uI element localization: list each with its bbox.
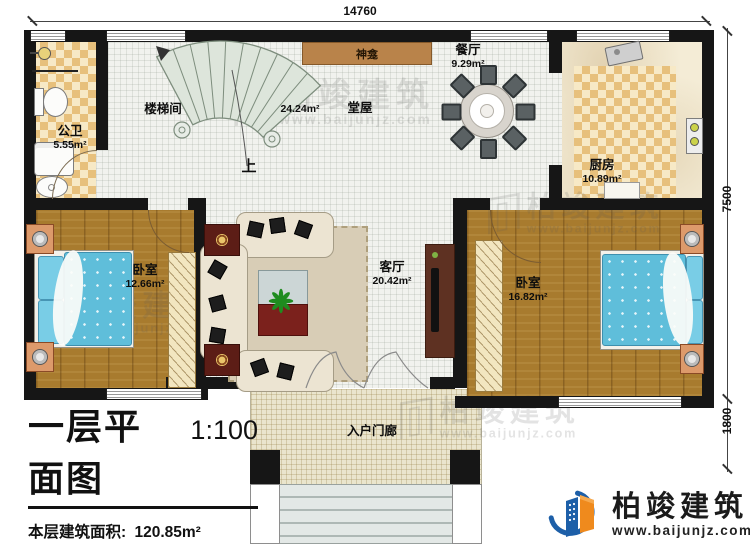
side-table: [204, 344, 240, 376]
dimension-line-top: [30, 21, 710, 22]
room-label-porch: 入户门廊: [347, 424, 397, 439]
stat-value: 120.85m²: [134, 524, 200, 541]
logo-text: 柏竣建筑: [612, 492, 750, 522]
lamp-icon: [684, 351, 700, 367]
spiral-staircase: [120, 8, 335, 178]
wardrobe: [475, 240, 503, 392]
chair-icon: [516, 104, 536, 121]
kitchen-faucet: [614, 49, 620, 55]
dimension-right-upper-value: 7500: [720, 173, 734, 225]
room-label-bedroom-left: 卧室12.66m²: [125, 263, 164, 291]
lamp-icon: [32, 349, 48, 365]
wall-bottom-center-right: [430, 377, 455, 389]
window-dining: [470, 31, 548, 41]
nightstand: [680, 224, 704, 254]
logo-url: www.baijunjz.com: [612, 523, 750, 538]
wall-living-right: [453, 198, 467, 388]
room-label-hall: 堂屋: [347, 101, 372, 116]
stat-line: 本层建筑面积: 120.85m²: [28, 520, 258, 542]
dining-table-hub: [480, 104, 494, 118]
wall-bedroom-right-top-a: [467, 198, 490, 210]
room-label-bedroom-right: 卧室16.82m²: [508, 276, 547, 304]
lamp-icon: [32, 231, 48, 247]
logo-building-icon: [546, 487, 604, 543]
window-bedroom-right: [558, 397, 682, 407]
room-label-kitchen: 厨房10.89m²: [582, 158, 621, 186]
dimension-top-value: 14760: [320, 4, 400, 18]
tv-screen: [431, 268, 439, 332]
gold-emblem-icon: [216, 234, 228, 246]
shrine-cabinet: 神龛: [302, 42, 432, 65]
floor-plan-sheet: 柏竣建筑 www.baijunjz.com 柏竣建筑 www.baijunjz.…: [0, 0, 750, 554]
cushion: [247, 221, 265, 239]
tv-accent: [432, 252, 438, 258]
side-table: [204, 224, 240, 256]
window-kitchen: [576, 31, 670, 41]
company-logo: 柏竣建筑 www.baijunjz.com: [546, 487, 750, 543]
chair-icon: [480, 139, 497, 159]
dimension-right-lower-value: 1800: [720, 395, 734, 447]
chair-icon: [442, 104, 462, 121]
cushion: [209, 327, 226, 344]
entry-steps: [272, 484, 460, 544]
stove-burner: [690, 123, 699, 132]
toilet-bowl: [43, 87, 68, 117]
wall-kitchen-dining-upper: [549, 42, 562, 73]
title-block: 一层平面图 1:100 本层建筑面积: 120.85m² 本层建筑面积: 371…: [28, 398, 258, 554]
column-base: [452, 484, 482, 544]
cushion: [269, 217, 286, 234]
plan-title: 一层平面图: [28, 398, 178, 502]
wall-kitchen-dining-lower: [549, 165, 562, 210]
room-label-living: 客厅20.42m²: [372, 260, 411, 288]
nightstand: [26, 224, 54, 254]
room-label-stairwell: 楼梯间: [144, 102, 182, 117]
shrine-label: 神龛: [356, 46, 378, 62]
porch-column-right: [450, 450, 480, 484]
nightstand: [680, 344, 704, 374]
plan-scale: 1:100: [190, 415, 258, 446]
room-label-dining: 餐厅9.29m²: [451, 43, 484, 71]
stove-burner: [690, 137, 699, 146]
shower-partition: [32, 70, 78, 72]
nightstand: [26, 342, 54, 372]
gold-emblem-icon: [216, 354, 228, 366]
wall-bedroom-left-top: [24, 198, 148, 210]
wardrobe: [168, 252, 196, 388]
plant-icon: [268, 288, 294, 314]
window-bathroom: [30, 31, 66, 41]
lamp-icon: [684, 231, 700, 247]
stat-label: 本层建筑面积:: [28, 524, 126, 541]
room-label-bathroom: 公卫5.55m²: [53, 124, 86, 152]
tv-cabinet: [425, 244, 455, 358]
shower-head-icon: [38, 47, 51, 60]
stairs-up-label: 上: [241, 158, 256, 176]
wall-bathroom-right: [96, 30, 108, 150]
entry-double-door: [300, 346, 432, 390]
room-label-hall-area: 24.24m²: [280, 103, 319, 116]
wall-bedroom-right-top-b: [540, 198, 714, 210]
plan-title-row: 一层平面图 1:100: [28, 398, 258, 509]
